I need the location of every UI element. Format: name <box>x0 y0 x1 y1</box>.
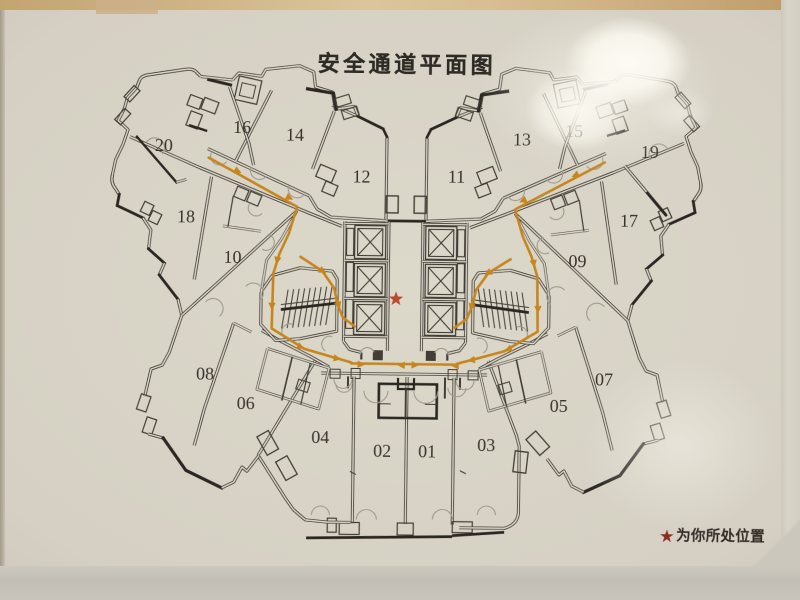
svg-text:10: 10 <box>223 247 241 267</box>
svg-text:18: 18 <box>177 206 195 226</box>
svg-text:17: 17 <box>620 211 638 231</box>
svg-text:15: 15 <box>565 121 583 141</box>
svg-text:07: 07 <box>595 369 613 389</box>
svg-text:12: 12 <box>352 166 370 186</box>
svg-text:16: 16 <box>233 117 251 137</box>
svg-text:19: 19 <box>641 142 659 162</box>
svg-text:13: 13 <box>513 129 531 149</box>
svg-text:安全通道平面图: 安全通道平面图 <box>317 51 496 78</box>
svg-text:04: 04 <box>311 427 329 447</box>
svg-text:06: 06 <box>237 393 255 413</box>
svg-text:05: 05 <box>550 396 568 416</box>
svg-text:03: 03 <box>477 435 495 455</box>
svg-text:20: 20 <box>155 135 173 155</box>
svg-text:11: 11 <box>448 167 466 187</box>
svg-text:08: 08 <box>196 364 214 384</box>
svg-text:为你所处位置: 为你所处位置 <box>676 526 765 545</box>
svg-text:★: ★ <box>660 529 674 545</box>
svg-text:01: 01 <box>418 441 436 461</box>
svg-text:14: 14 <box>286 125 304 145</box>
svg-text:09: 09 <box>568 251 586 271</box>
svg-text:02: 02 <box>373 441 391 461</box>
